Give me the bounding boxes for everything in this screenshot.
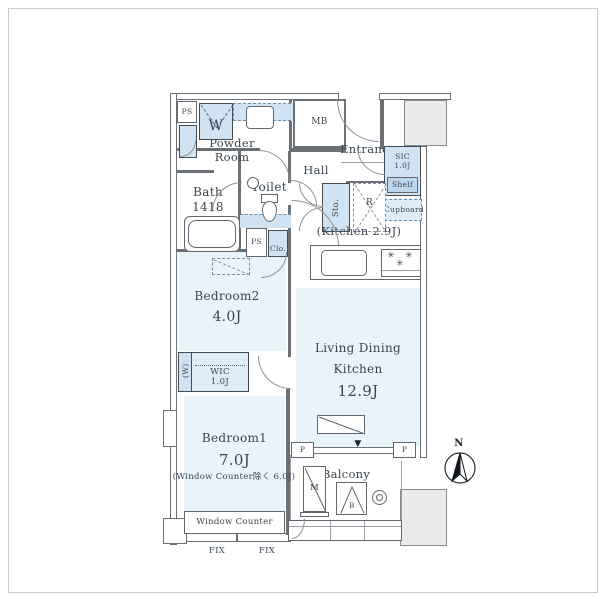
compass-north-label: N [451,438,467,450]
ldk-label-line2: Kitchen [308,362,408,376]
stove-burner-3: ✳ [394,259,406,270]
powder-room-label: Powder Room [201,137,263,165]
bedroom1-note-label: (Window Counter除く 6.0J) [167,472,301,482]
balcony-railing [288,520,402,541]
wall-bath-top [176,170,214,173]
stove-front-line [382,270,420,271]
window-center-marker: ▼ [351,439,365,450]
wall-top-right [379,93,451,100]
wic-size-label: 1.0J [195,377,245,387]
wic-name-label: WIC [195,367,245,377]
drain-icon-inner [376,494,383,501]
vanity-sink-icon [246,106,274,129]
outside-block-bottom-right [400,489,447,546]
meter-box-label: MB [293,117,346,128]
storage-label: Sto. [331,194,341,222]
wall-right [420,146,427,458]
pipe-space-mid-label: PS [246,237,267,246]
outdoor-unit-m-label: M [303,483,326,493]
ldk-size-label: 12.9J [308,382,408,400]
ldk-label-line1: Living Dining [308,341,408,355]
sic-name-label: SIC [384,152,421,161]
compass-icon [443,450,477,486]
wic-w-label: (W) [181,365,190,378]
fix-window-left-label: FIX [203,546,231,556]
sic-size-label: 1.0J [384,161,421,170]
wall-hall-west-3 [288,248,291,357]
tv-board [317,415,365,434]
fix-window-right-label: FIX [253,546,281,556]
pipe-space-top-label: PS [177,107,197,116]
bedroom2-size-label: 4.0J [172,309,282,326]
kitchen-sink-icon [321,250,367,276]
wall-bottom-window [171,533,291,542]
shelf-label: Shelf [387,180,418,189]
outside-block-top-right [404,100,447,146]
railing-inner-line [289,526,401,527]
pillar-right-label: P [393,445,416,454]
bedroom1-name-label: Bedroom1 [184,431,285,445]
bedroom1-size-label: 7.0J [184,451,285,469]
hall-label: Hall [294,164,338,178]
floor-plan-page: { "labels": { "ps_top": "PS", "washer": … [0,0,606,601]
window-counter-label: Window Counter [184,517,285,527]
toilet-basin-icon [247,177,259,189]
unit-b-label: B [344,502,360,510]
bedroom2-name-label: Bedroom2 [172,289,282,303]
refrigerator-label: R [353,198,386,209]
railing-divider-1 [330,521,331,540]
railing-divider-2 [364,521,365,540]
outdoor-unit-m-base [300,512,329,517]
pillar-left-mid [163,410,177,447]
wic-hanger-line [195,365,245,366]
bedroom2-dashed-fixture [212,258,250,275]
pillar-left-label: P [291,445,314,454]
bathtub-inner [188,220,236,248]
cupboard-label: Cupboard [384,205,422,214]
window-mullion [236,533,238,542]
washer-label: W [199,118,233,135]
